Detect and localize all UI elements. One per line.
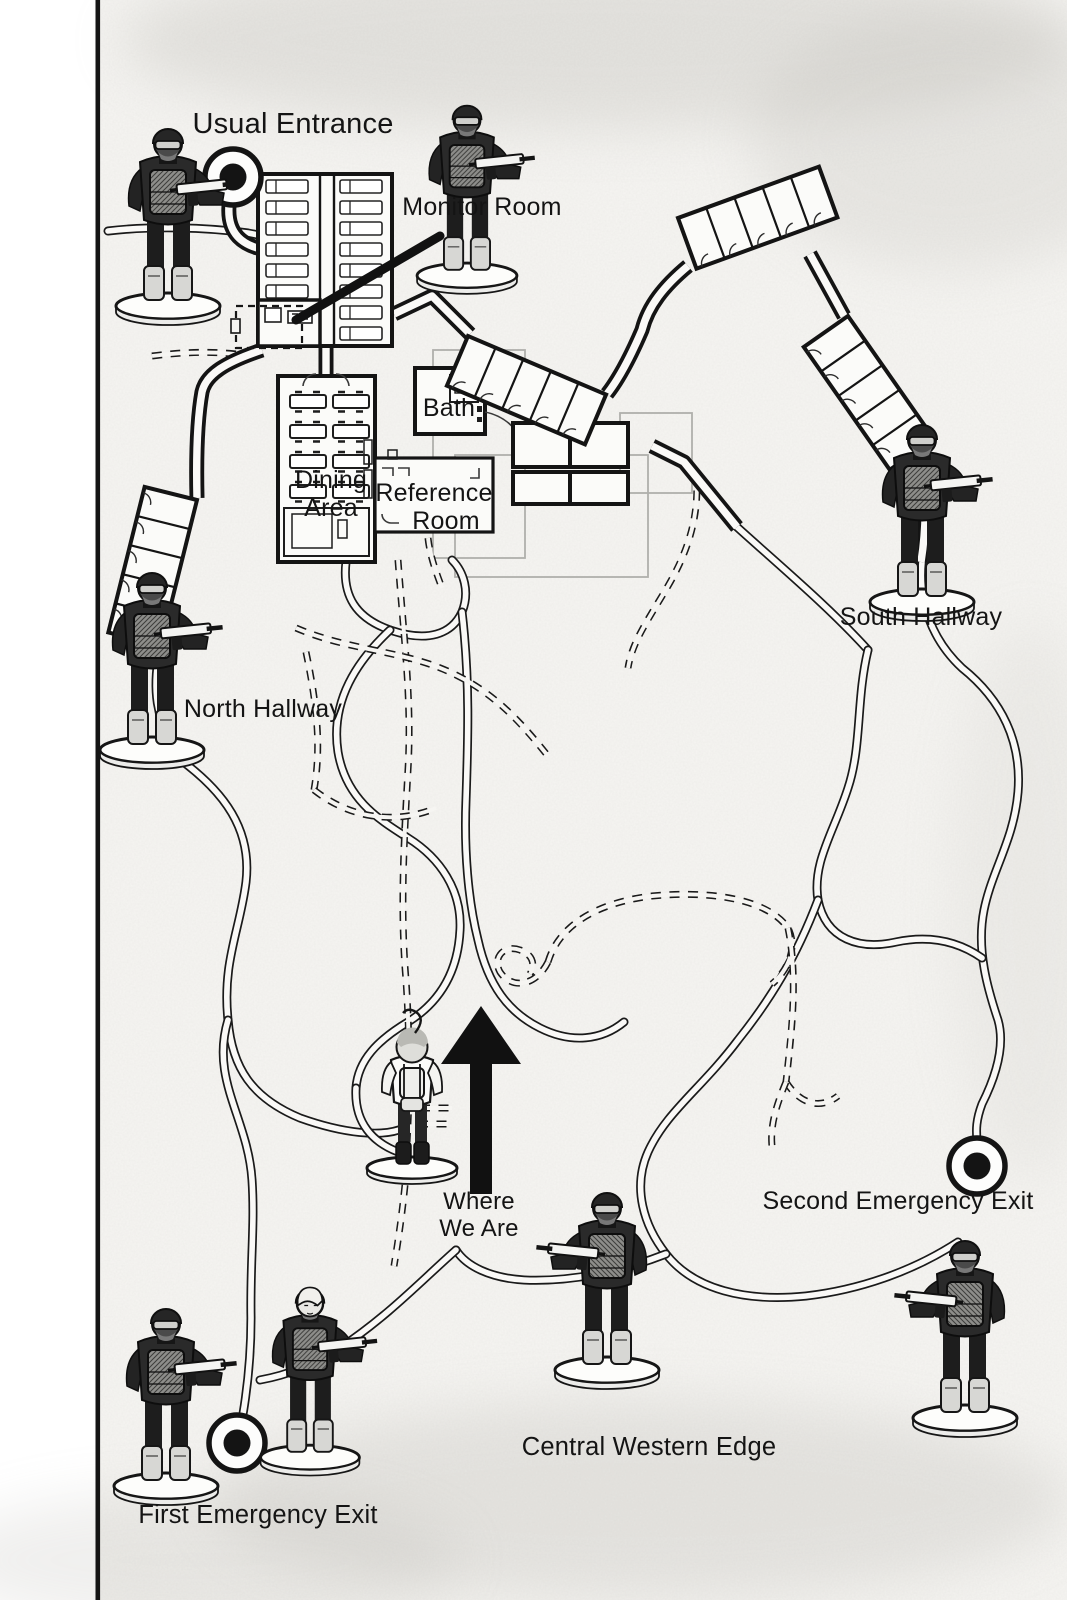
panel-border	[96, 0, 101, 1600]
first-emergency-exit-label: First Emergency Exit	[138, 1503, 377, 1529]
central-western-edge-label: Central Western Edge	[522, 1435, 776, 1461]
where-we-are-label-line2: We Are	[439, 1217, 518, 1241]
dining-area-label-line2: Area	[304, 496, 358, 521]
reference-room-label-line1: Reference	[375, 481, 492, 506]
first-emergency-exit-marker bullseye-icon	[209, 1415, 265, 1471]
reference-room-label-line2: Room	[412, 509, 480, 534]
bath-label: Bath	[423, 396, 475, 421]
monitor-room-label: Monitor Room	[402, 195, 561, 220]
south-hallway-label: South Hallway	[840, 605, 1002, 630]
blond-hair-overlay	[297, 1287, 323, 1316]
dining-area-label-line1: Dining	[295, 468, 367, 493]
second-emergency-exit-marker bullseye-icon	[949, 1138, 1005, 1194]
usual-entrance-label: Usual Entrance	[192, 110, 393, 139]
facility-map	[0, 0, 1067, 1600]
second-emergency-exit-label: Second Emergency Exit	[763, 1189, 1034, 1214]
where-we-are-label-line1: Where	[443, 1190, 515, 1214]
manga-map-page: Usual Entrance Monitor Room Bath Dining …	[0, 0, 1067, 1600]
north-hallway-label: North Hallway	[184, 697, 342, 722]
